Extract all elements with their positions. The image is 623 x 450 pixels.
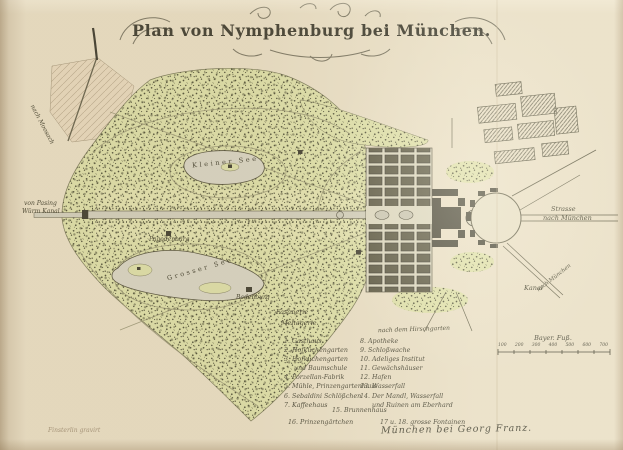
label-wuerm-kanal: Würm Kanal bbox=[22, 209, 60, 215]
engraver-credit: Finsterlin gravirt bbox=[48, 427, 100, 434]
scale-tick-label: 600 bbox=[582, 343, 591, 348]
legend-entry: 13. Wasserfall bbox=[360, 382, 453, 391]
label-badenburg: Badenburg bbox=[236, 295, 270, 301]
scale-tick-label: 700 bbox=[599, 343, 608, 348]
palace-buildings bbox=[432, 189, 465, 247]
legend-entry: 9. Schloßwache bbox=[360, 346, 453, 355]
scale-tick-label: 400 bbox=[549, 343, 558, 348]
rondell-court bbox=[466, 188, 521, 248]
map-title: Plan von Nymphenburg bei München. bbox=[0, 21, 623, 40]
legend-entry: 8. Apotheke bbox=[360, 337, 453, 346]
scale-bar: Bayer. Fuß. 100200300400500600700 bbox=[496, 334, 610, 348]
map-legend: 1. Gasthaus2. Hofküchengarten3. Hofküche… bbox=[284, 337, 459, 427]
map-sheet: Plan von Nymphenburg bei München. Kleine… bbox=[0, 0, 623, 450]
legend-entry: 12. Hafen bbox=[360, 373, 453, 382]
label-menagerie: Menagerie bbox=[281, 320, 317, 327]
legend-column-right: 8. Apotheke9. Schloßwache10. Adeliges In… bbox=[360, 337, 453, 410]
label-strasse: Strasse bbox=[551, 206, 576, 213]
legend-entry: 11. Gewächshäuser bbox=[360, 364, 453, 373]
scale-tick-label: 200 bbox=[515, 343, 524, 348]
scale-tick-label: 100 bbox=[498, 343, 507, 348]
scale-bar-tick-labels: 100200300400500600700 bbox=[496, 343, 610, 348]
label-pagodenburg: Pagodenburg bbox=[149, 237, 189, 243]
legend-entry-16: 16. Prinzengärtchen bbox=[288, 419, 353, 426]
legend-entry-15: 15. Brunnenhaus bbox=[332, 407, 387, 414]
label-von-pasing: von Pasing bbox=[24, 201, 57, 207]
scale-tick-label: 500 bbox=[566, 343, 575, 348]
parterre-gardens bbox=[366, 148, 432, 292]
label-fasanerie: Fasanerie bbox=[276, 309, 308, 316]
town-blocks bbox=[475, 76, 581, 165]
legend-entry: 14. Der Mandl, Wasserfall bbox=[360, 392, 453, 401]
label-nach-muenchen: nach München bbox=[543, 215, 592, 222]
scale-bar-rule bbox=[498, 349, 610, 355]
legend-entry: 10. Adeliges Institut bbox=[360, 355, 453, 364]
scale-bar-title: Bayer. Fuß. bbox=[496, 334, 610, 342]
scale-tick-label: 300 bbox=[532, 343, 541, 348]
